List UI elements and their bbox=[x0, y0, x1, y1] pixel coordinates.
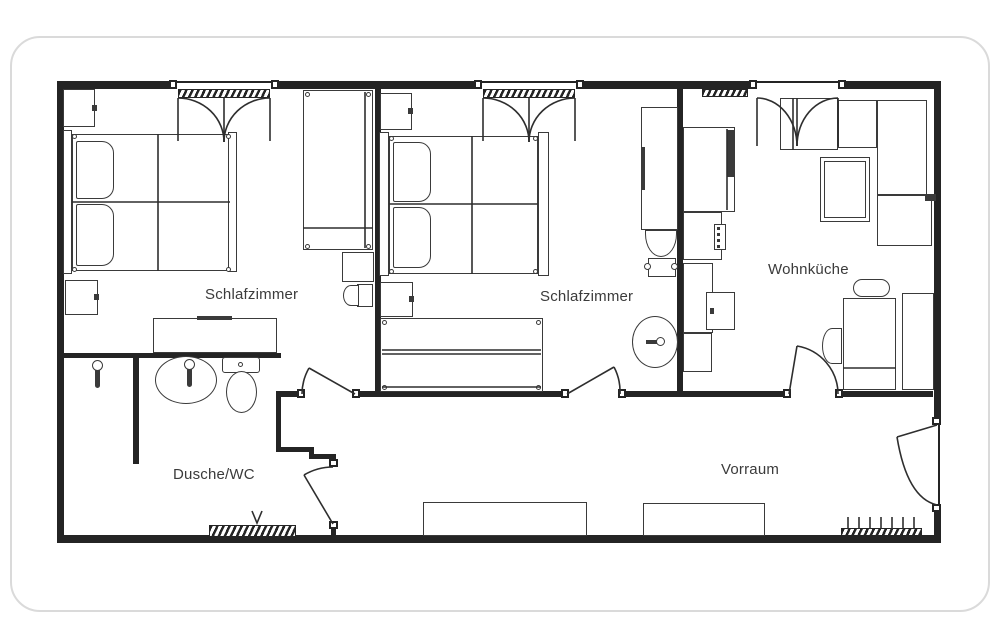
cabinet-handle bbox=[710, 308, 714, 314]
corner-counter bbox=[877, 195, 932, 246]
bed-corner-dot bbox=[305, 244, 310, 249]
corner-counter bbox=[838, 100, 877, 148]
window-jamb bbox=[169, 80, 177, 89]
outer-wall-top-line bbox=[57, 81, 941, 83]
pillow bbox=[76, 141, 114, 199]
door-jamb-bedroom2 bbox=[561, 389, 569, 398]
nightstand-handle bbox=[409, 296, 414, 302]
faucet-icon bbox=[656, 337, 665, 346]
sofa-corner-dot bbox=[382, 320, 387, 325]
pillow bbox=[393, 207, 431, 268]
wall-hall-top bbox=[838, 391, 933, 397]
sofa-corner-dot bbox=[382, 385, 387, 390]
door-jamb-bedroom1 bbox=[297, 389, 305, 398]
chair-seat bbox=[343, 285, 359, 306]
single-bed bbox=[303, 90, 373, 250]
stove-knob bbox=[717, 233, 720, 236]
kitchen-counter-mark bbox=[727, 130, 734, 177]
sofa-corner-dot bbox=[536, 320, 541, 325]
bed-headboard bbox=[63, 130, 72, 274]
window-radiator-bedroom1 bbox=[178, 89, 270, 98]
bed-headboard bbox=[379, 132, 389, 276]
dresser-mark bbox=[197, 316, 232, 320]
floor-plan: Schlafzimmer Schlafzimmer Wohnküche Dusc… bbox=[0, 0, 1000, 625]
bed-corner-dot bbox=[226, 134, 231, 139]
wall-bath-step bbox=[276, 391, 281, 452]
desk-chair bbox=[822, 328, 842, 364]
outer-wall-top bbox=[57, 81, 177, 89]
sofa-daybed bbox=[380, 318, 543, 392]
stove-knob bbox=[717, 245, 720, 248]
toilet-bowl bbox=[226, 371, 257, 413]
room-label-hall: Vorraum bbox=[721, 461, 779, 478]
room-label-bedroom1: Schlafzimmer bbox=[205, 286, 298, 303]
outer-wall-right bbox=[934, 81, 941, 425]
side-table bbox=[342, 252, 374, 282]
desk bbox=[843, 298, 896, 390]
window-jamb bbox=[271, 80, 279, 89]
window-jamb bbox=[474, 80, 482, 89]
bed-footboard bbox=[228, 132, 237, 272]
stove-knob-panel bbox=[714, 224, 726, 250]
counter-under-window bbox=[780, 98, 838, 150]
bed-corner-dot bbox=[533, 269, 538, 274]
wardrobe-mark bbox=[641, 147, 645, 190]
bed-corner-dot bbox=[72, 267, 77, 272]
room-label-bath: Dusche/WC bbox=[173, 466, 255, 483]
toilet-button bbox=[238, 362, 243, 367]
wardrobe bbox=[641, 107, 678, 230]
wall-hall-top bbox=[620, 391, 787, 397]
door-jamb-bath bbox=[329, 459, 338, 467]
window-radiator-bedroom2 bbox=[483, 89, 575, 98]
table-top bbox=[824, 161, 866, 218]
room-label-bedroom2: Schlafzimmer bbox=[540, 288, 633, 305]
bed-corner-dot bbox=[389, 136, 394, 141]
shelf-unit bbox=[902, 293, 934, 390]
shower-faucet-icon bbox=[95, 370, 100, 388]
counter-mark bbox=[925, 194, 936, 201]
nightstand-handle bbox=[94, 294, 99, 300]
radiator-bath bbox=[209, 525, 296, 537]
corner-counter bbox=[877, 100, 927, 195]
entry-door-threshold bbox=[938, 425, 940, 505]
bed-corner-dot bbox=[389, 269, 394, 274]
sink-faucet-icon bbox=[187, 369, 192, 387]
stove-knob bbox=[717, 239, 720, 242]
bed-corner-dot bbox=[305, 92, 310, 97]
stool-knob bbox=[644, 263, 651, 270]
outer-wall-bottom bbox=[57, 535, 941, 543]
door-jamb-bath bbox=[329, 521, 338, 529]
bed-corner-dot bbox=[366, 244, 371, 249]
door-jamb-kitchen bbox=[783, 389, 791, 398]
chair bbox=[357, 284, 373, 307]
door-jamb-kitchen bbox=[835, 389, 843, 398]
bed-corner-dot bbox=[226, 267, 231, 272]
door-jamb-entry bbox=[932, 417, 941, 425]
door-jamb-bedroom2 bbox=[618, 389, 626, 398]
pillow bbox=[76, 204, 114, 266]
nightstand-handle bbox=[92, 105, 97, 111]
bed-corner-dot bbox=[366, 92, 371, 97]
window-jamb bbox=[838, 80, 846, 89]
hall-cabinet bbox=[643, 503, 765, 536]
hall-cabinet bbox=[423, 502, 587, 536]
radiator-kitchen bbox=[702, 89, 748, 97]
bed-footboard bbox=[538, 132, 549, 276]
wall-bath-right bbox=[331, 528, 336, 537]
stove-knob bbox=[717, 227, 720, 230]
coat-rack-bar bbox=[841, 528, 922, 536]
faucet-icon bbox=[646, 340, 657, 344]
pillow bbox=[393, 142, 431, 202]
stool-knob bbox=[671, 263, 678, 270]
window-jamb bbox=[749, 80, 757, 89]
door-jamb-entry bbox=[932, 504, 941, 512]
bolster-cushion bbox=[853, 279, 890, 297]
door-jamb-bedroom1 bbox=[352, 389, 360, 398]
window-jamb bbox=[576, 80, 584, 89]
kitchen-cabinet bbox=[683, 333, 712, 372]
bed-corner-dot bbox=[533, 136, 538, 141]
sofa-corner-dot bbox=[536, 385, 541, 390]
shower-partition bbox=[133, 357, 139, 464]
outer-wall-top bbox=[576, 81, 757, 89]
nightstand bbox=[63, 89, 95, 127]
outer-wall-top bbox=[838, 81, 941, 89]
dresser bbox=[153, 318, 277, 353]
room-label-kitchen: Wohnküche bbox=[768, 261, 849, 278]
bed-corner-dot bbox=[72, 134, 77, 139]
nightstand-handle bbox=[408, 108, 413, 114]
